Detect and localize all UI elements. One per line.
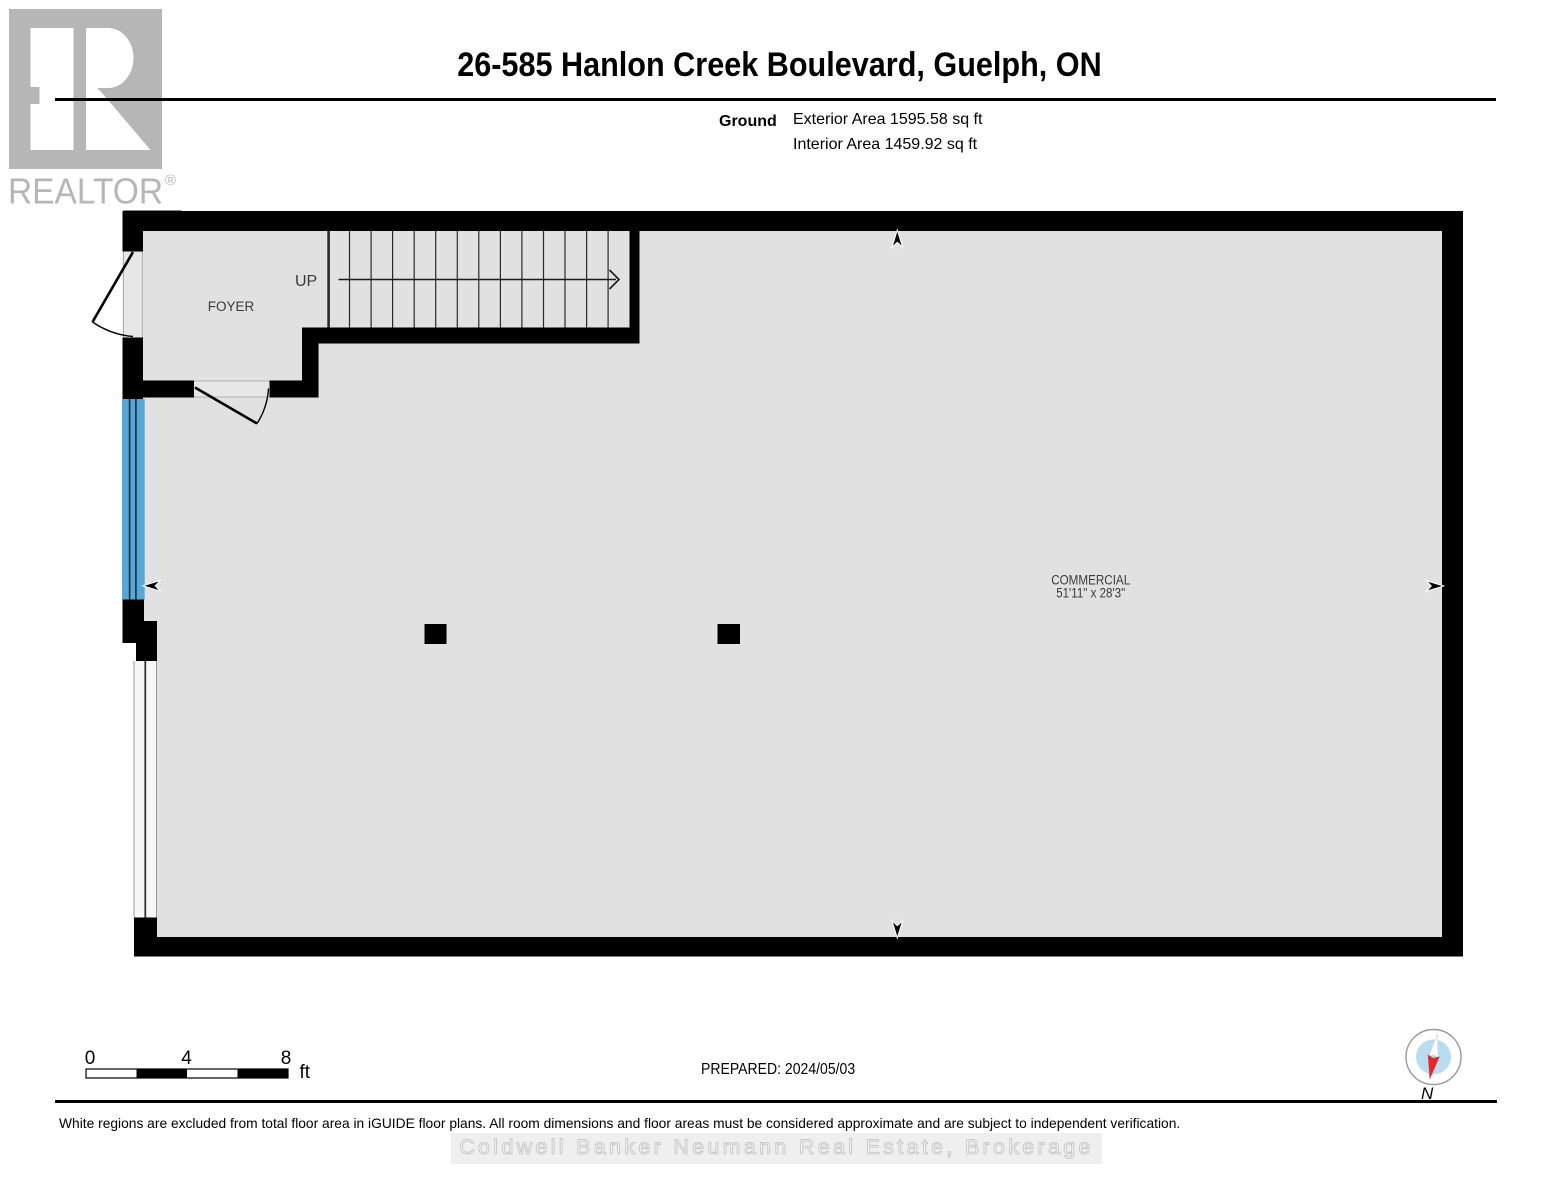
svg-text:51'11" x 28'3": 51'11" x 28'3" <box>1056 586 1125 601</box>
svg-text:8: 8 <box>281 1048 292 1069</box>
svg-text:0: 0 <box>85 1048 96 1069</box>
svg-text:4: 4 <box>181 1048 192 1069</box>
svg-text:FOYER: FOYER <box>208 299 255 314</box>
svg-text:UP: UP <box>295 273 317 290</box>
svg-text:ft: ft <box>300 1062 311 1083</box>
